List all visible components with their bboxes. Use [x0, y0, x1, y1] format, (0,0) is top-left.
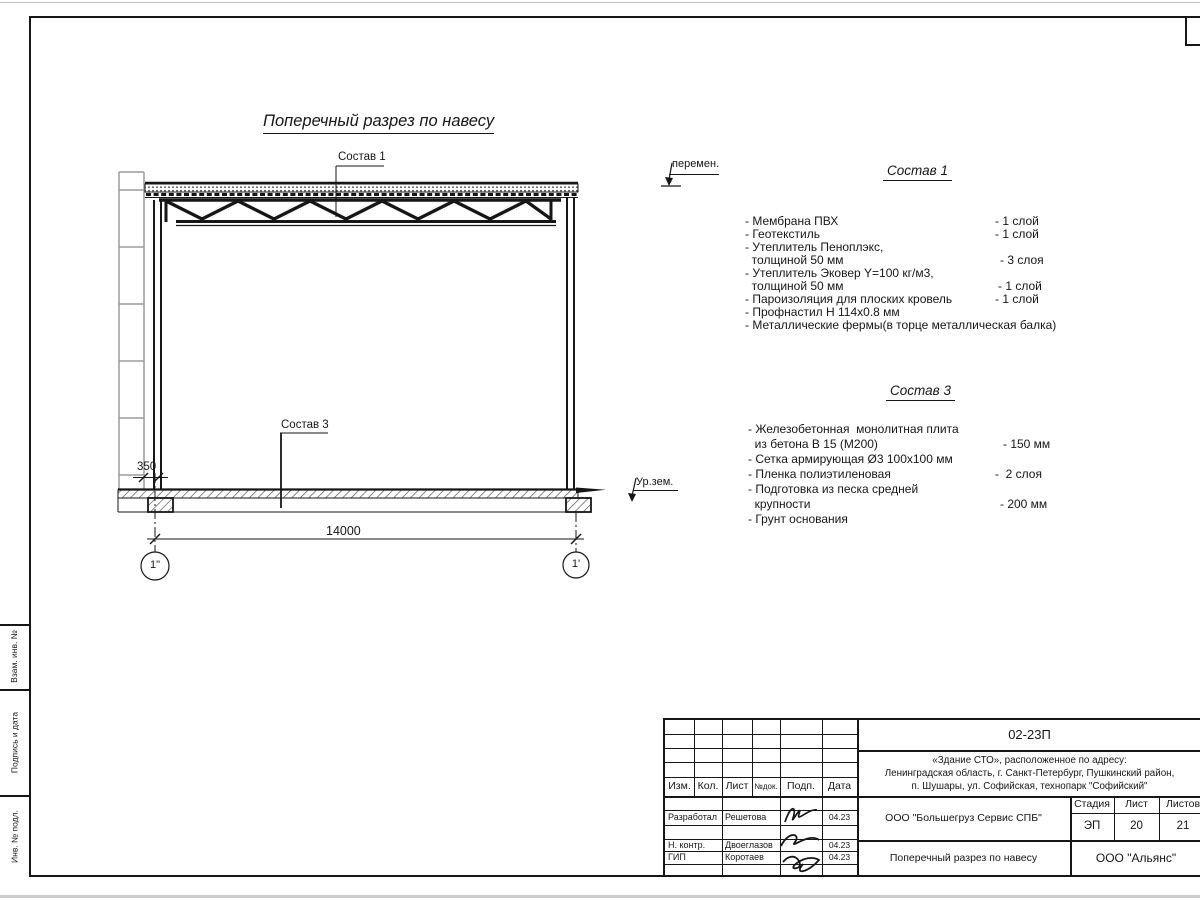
footings [148, 498, 591, 512]
sostav3-heading: Состав 3 [748, 383, 1093, 398]
sheets-label: Листов [1159, 796, 1200, 813]
strip-cell-podpis: Подпись и дата [1, 690, 30, 796]
stage-value: ЭП [1070, 813, 1114, 840]
signature-icon [775, 828, 827, 878]
columns [154, 198, 574, 497]
spec-line: - Железобетонная монолитная плита [748, 422, 1093, 437]
spec-line: - Подготовка из песка средней [748, 482, 1093, 497]
row-name-developer: Решетова [725, 810, 766, 825]
drawing-main-title: Поперечный разрез по навесу [263, 112, 494, 134]
sostav1-spec: Состав 1 - Мембрана ПВХ- 1 слой - Геотек… [745, 160, 1090, 340]
drawing-sheet: Поперечный разрез по навесу Состав 1 Сос… [0, 0, 1200, 900]
project-line-1: «Здание СТО», расположенное по адресу: [857, 754, 1200, 767]
roof-truss [159, 200, 561, 226]
spec-line: - Сетка армирующая Ø3 100х100 мм [748, 452, 1093, 467]
sostav3-spec: Состав 3 - Железобетонная монолитная пли… [748, 380, 1093, 540]
leader-lines [280, 166, 384, 508]
signature-icon [781, 800, 822, 828]
spec-line: крупности- 200 мм [748, 497, 1093, 512]
sheets-value: 21 [1159, 813, 1200, 840]
sostav1-heading: Состав 1 [745, 163, 1090, 178]
row-date-gip: 04.23 [822, 851, 857, 864]
row-role-developer: Разработал [668, 810, 717, 825]
project-line-3: п. Шушары, ул. Софийская, технопарк "Соф… [857, 780, 1200, 793]
col-podp: Подп. [780, 777, 822, 796]
sheet-label: Лист [1114, 796, 1159, 813]
row-role-gip: ГИП [668, 851, 686, 864]
doc-number: 02-23П [857, 720, 1200, 750]
label-ur-zem: Ур.зем. [636, 476, 673, 488]
spec-line: - Грунт основания [748, 512, 1093, 527]
sheet-value: 20 [1114, 813, 1159, 840]
dim-350-text: 350 [137, 461, 156, 473]
col-kol: Кол. [694, 777, 722, 796]
company-name: ООО "Большегруз Сервис СПБ" [857, 796, 1070, 840]
label-peremen: перемен. [672, 158, 719, 170]
roof-layers [145, 183, 578, 198]
axis-label-right: 1' [563, 558, 589, 570]
title-block: Изм. Кол. Лист №док. Подп. Дата Разработ… [663, 718, 1200, 877]
col-izm: Изм. [665, 777, 694, 796]
callout-sostav3: Состав 3 [281, 419, 329, 431]
spec-line: - Металлические фермы(в торце металличес… [745, 319, 1090, 332]
col-list: Лист [722, 777, 752, 796]
org-name: ООО "Альянс" [1070, 840, 1200, 877]
callout-sostav1: Состав 1 [338, 151, 386, 163]
spec-line: из бетона В 15 (М200)- 150 мм [748, 437, 1093, 452]
adjacent-wall [119, 172, 144, 490]
project-line-2: Ленинградская область, г. Санкт-Петербур… [857, 767, 1200, 780]
col-data: Дата [822, 777, 857, 796]
strip-cell-inv: Инв. № подл. [1, 796, 30, 878]
row-date-ncontr: 04.23 [822, 839, 857, 851]
row-role-ncontr: Н. контр. [668, 839, 705, 851]
drawing-title-cell: Поперечный разрез по навесу [857, 840, 1070, 877]
axis-label-left: 1" [141, 559, 169, 571]
col-ndok: №док. [752, 777, 780, 796]
stage-label: Стадия [1070, 796, 1114, 813]
row-name-ncontr: Двоеглазов [725, 839, 773, 851]
row-name-gip: Коротаев [725, 851, 764, 864]
dim-14000-text: 14000 [326, 524, 361, 538]
spec-line: - Пленка полиэтиленовая- 2 слоя [748, 467, 1093, 482]
strip-cell-vzam: Взам. инв. № [0, 624, 29, 689]
ground-slab [118, 488, 606, 513]
row-date-developer: 04.23 [822, 810, 857, 825]
